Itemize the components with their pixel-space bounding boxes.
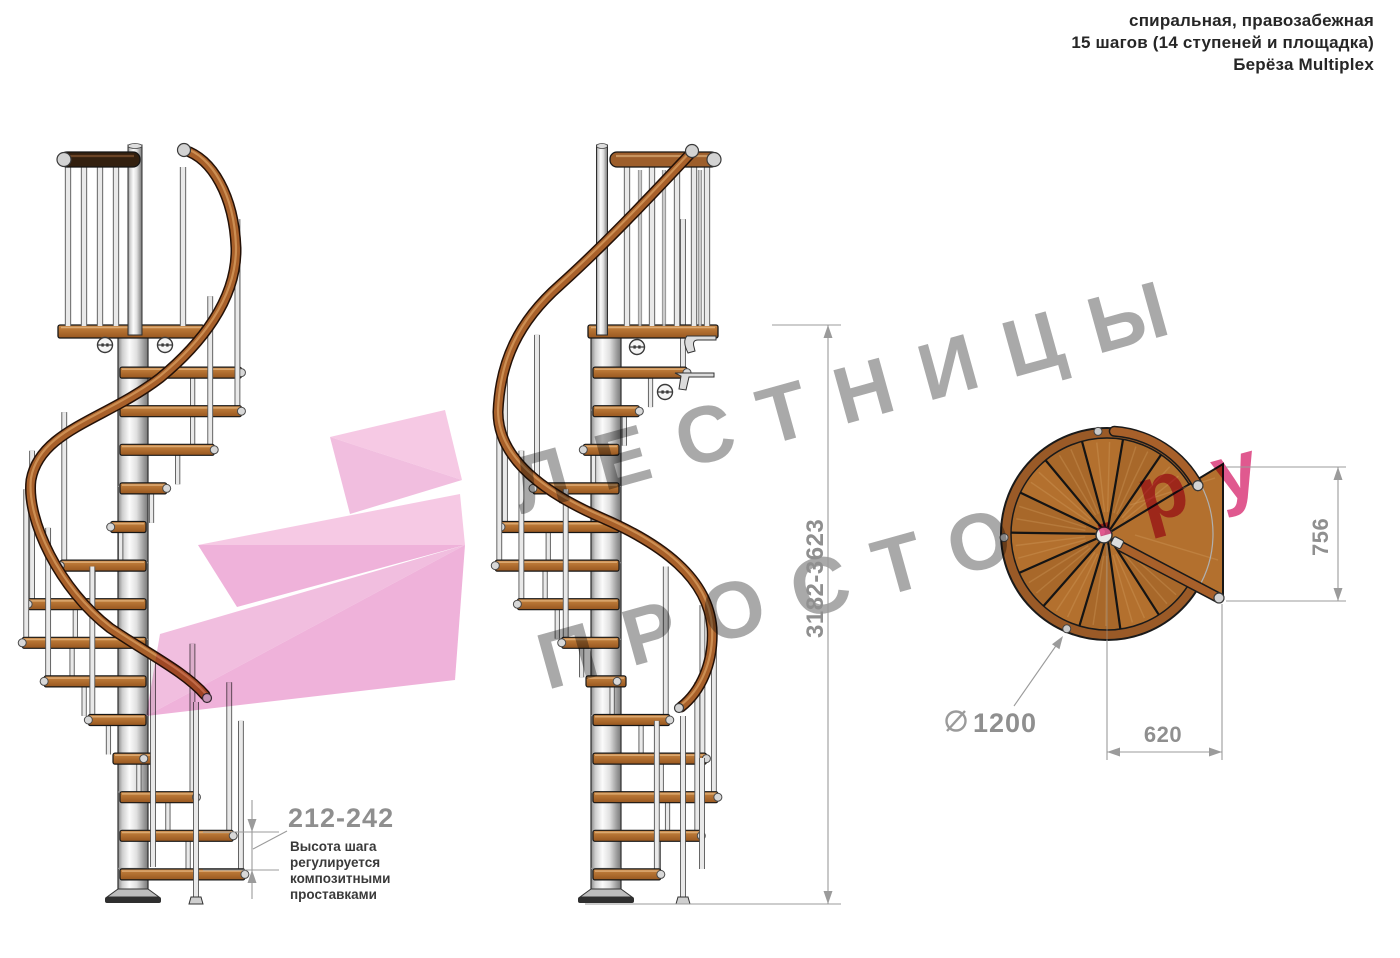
dimension-landing-width: 620 [1144, 722, 1182, 747]
staircase-technical-drawing: ЛЕСТНИЦЫ ПРОСТО .ру 3182-3623 756 620 21… [0, 0, 1400, 958]
watermark-text: ЛЕСТНИЦЫ ПРОСТО .ру [502, 256, 1297, 706]
side-view-left [18, 144, 249, 905]
dimension-total-height: 3182-3623 [802, 519, 829, 638]
dimension-diameter: 1200 [973, 708, 1037, 738]
dimension-step-height: 212-242 [288, 803, 394, 833]
drawing-page: спиральная, правозабежная 15 шагов (14 с… [0, 0, 1400, 958]
step-height-note: Высота шага регулируется композитными пр… [290, 839, 394, 902]
dimension-landing-length: 756 [1308, 518, 1333, 556]
diameter-callout: 1200 [947, 708, 1038, 738]
